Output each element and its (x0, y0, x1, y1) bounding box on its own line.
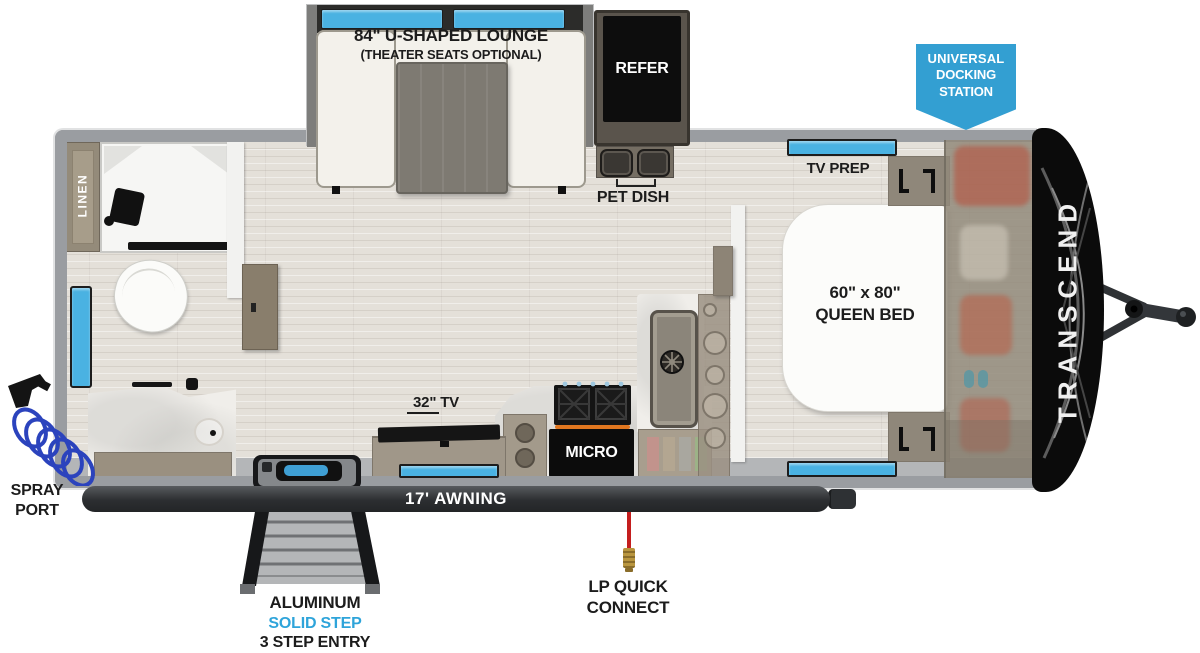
spray-label-line2: PORT (4, 502, 70, 520)
sofa-foot (332, 186, 340, 194)
lp-label-line1: LP QUICK (578, 578, 678, 597)
front-cap: TRANSCEND (1032, 128, 1104, 492)
tv-prep-label: TV PREP (788, 161, 888, 178)
lounge-table (396, 62, 508, 194)
lounge-label-line1: 84" U-SHAPED LOUNGE (330, 27, 572, 46)
awning-label: 17' AWNING (405, 490, 507, 509)
docking-label-line2: DOCKING (916, 68, 1016, 82)
pet-dish-label: PET DISH (588, 189, 678, 207)
hitch-a-frame (1090, 245, 1200, 375)
lp-label-line2: CONNECT (578, 599, 678, 618)
entry-door (253, 455, 361, 490)
lounge-label-group: 84" U-SHAPED LOUNGE (THEATER SEATS OPTIO… (330, 27, 572, 62)
tv-label-leader-line (407, 412, 439, 414)
wardrobe-clothes (960, 225, 1008, 280)
wardrobe-slipper (978, 370, 988, 388)
steps-label-line1: ALUMINUM (248, 594, 382, 613)
window-bath-left (70, 286, 92, 388)
refrigerator: REFER (603, 16, 681, 122)
wardrobe-red-shirt (960, 295, 1012, 355)
wardrobe-lower-section (946, 420, 1038, 478)
floorplan-canvas: LINEN MICRO (0, 0, 1200, 653)
steps-label-line3: 3 STEP ENTRY (248, 634, 382, 652)
entry-door-window (284, 465, 328, 476)
lp-connector-tip (625, 568, 633, 572)
bed-size-label: 60" x 80" (790, 284, 940, 303)
window-kitchen-bottom (399, 464, 499, 478)
wardrobe-red-gear (954, 146, 1030, 206)
docking-label-line1: UNIVERSAL (916, 52, 1016, 66)
window-tv-prep (787, 139, 897, 156)
spray-port-label-group: SPRAY PORT (4, 482, 70, 519)
entry-steps (238, 504, 384, 600)
spray-label-line1: SPRAY (4, 482, 70, 500)
steps-label-group: ALUMINUM SOLID STEP 3 STEP ENTRY (248, 594, 382, 652)
brand-label: TRANSCEND (1054, 197, 1083, 423)
sofa-foot (558, 186, 566, 194)
refer-label: REFER (615, 60, 668, 78)
window-bedroom-bottom (787, 461, 897, 477)
docking-label-line3: STATION (916, 85, 1016, 99)
pet-dish-stand (616, 179, 656, 187)
pet-dish-bowl (600, 149, 633, 177)
front-wardrobe-overlay (944, 140, 1036, 478)
tv-32-label: 32" TV (405, 395, 467, 412)
steps-label-line2: SOLID STEP (248, 615, 382, 633)
docking-station-badge: UNIVERSAL DOCKING STATION (916, 44, 1016, 130)
lounge-label-line2: (THEATER SEATS OPTIONAL) (330, 48, 572, 62)
awning-end-cap (828, 489, 856, 509)
awning-bar: 17' AWNING (82, 486, 830, 512)
lp-label-group: LP QUICK CONNECT (578, 578, 678, 617)
entry-door-hinge (262, 462, 272, 472)
pet-dish-bowl (637, 149, 670, 177)
lp-connector-icon (623, 548, 635, 568)
bed-label-group: 60" x 80" QUEEN BED (790, 284, 940, 324)
bed-type-label: QUEEN BED (790, 306, 940, 325)
wardrobe-slipper (964, 370, 974, 388)
